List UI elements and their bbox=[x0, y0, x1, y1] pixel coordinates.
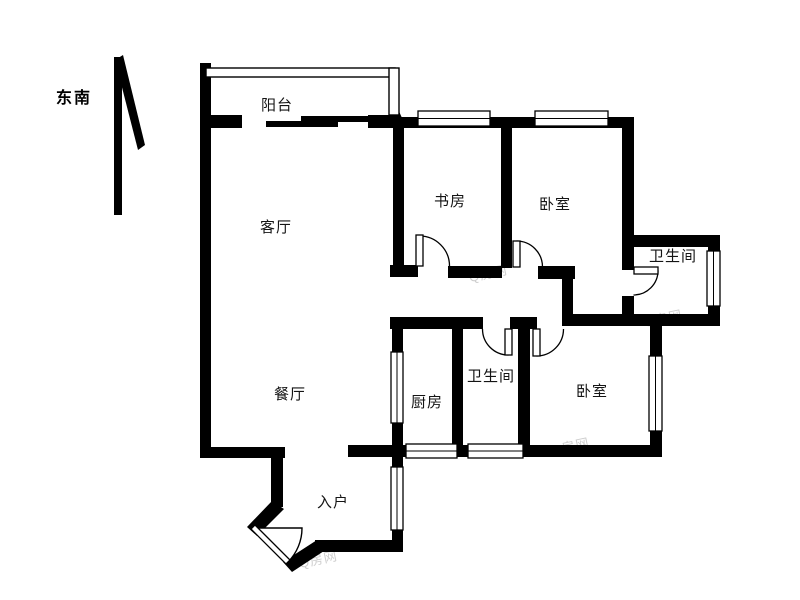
wall-entry-right-stub-top bbox=[392, 457, 403, 467]
balcony-railing-top bbox=[206, 68, 395, 77]
wall-bathroom2-right bbox=[518, 326, 530, 447]
window-kitchen bbox=[391, 352, 403, 423]
wall-bedroom2-top bbox=[562, 314, 720, 326]
wall-corridor-north-a bbox=[390, 265, 418, 277]
wall-right-upper bbox=[622, 117, 634, 270]
room-label-balcony: 阳台 bbox=[261, 97, 293, 114]
wall-kitchen-left-top bbox=[392, 317, 403, 352]
room-label-dining: 餐厅 bbox=[274, 386, 306, 403]
wall-corridor-north-b bbox=[448, 266, 502, 278]
floor-plan: Q房网 Q房网 Q房网 Q房网 东南 bbox=[0, 0, 800, 600]
wall-bathroom1-right-cap-top bbox=[708, 235, 720, 251]
door-bathroom2 bbox=[483, 329, 513, 355]
room-label-kitchen: 厨房 bbox=[411, 394, 443, 411]
compass-label: 东南 bbox=[56, 88, 92, 107]
balcony-railing-right bbox=[389, 68, 399, 115]
window-bathroom1 bbox=[707, 251, 720, 306]
door-study bbox=[416, 235, 450, 266]
compass: 东南 bbox=[56, 55, 145, 215]
window-bottom-bathroom2 bbox=[468, 444, 523, 458]
floor-plan-drawing: Q房网 Q房网 Q房网 Q房网 东南 bbox=[0, 0, 800, 600]
wall-corridor-east bbox=[562, 266, 573, 318]
door-bedroom2 bbox=[533, 329, 564, 356]
wall-entry-right-stub-bottom bbox=[392, 530, 403, 552]
window-bedroom2 bbox=[649, 356, 662, 431]
window-bedroom1 bbox=[535, 111, 608, 126]
window-study bbox=[418, 111, 490, 126]
wall-kitchen-right bbox=[452, 323, 463, 449]
room-label-bathroom1: 卫生间 bbox=[649, 248, 697, 265]
wall-entry-left bbox=[271, 447, 283, 507]
door-bedroom1 bbox=[513, 241, 543, 267]
wall-bathroom1-door-stub bbox=[622, 296, 634, 314]
wall-living-study bbox=[393, 128, 404, 268]
window-bottom-kitchen bbox=[406, 444, 457, 458]
wall-balcony-left-stub bbox=[208, 115, 242, 128]
balcony-sliding-door bbox=[266, 116, 377, 127]
wall-bathroom1-top bbox=[622, 235, 720, 247]
wall-entry-bottom bbox=[315, 540, 403, 552]
room-label-living: 客厅 bbox=[260, 219, 292, 236]
wall-corridor-south-a bbox=[390, 317, 483, 329]
room-label-study: 书房 bbox=[434, 193, 466, 210]
window-entry bbox=[391, 467, 403, 530]
room-label-entry: 入户 bbox=[317, 494, 349, 511]
sliding-door-panel bbox=[301, 116, 377, 122]
wall-bedroom2-right-top bbox=[650, 326, 662, 356]
door-bathroom1 bbox=[634, 267, 659, 295]
room-label-bedroom2: 卧室 bbox=[576, 383, 608, 400]
walls bbox=[200, 63, 720, 572]
room-label-bathroom2: 卫生间 bbox=[467, 368, 515, 385]
balcony-railing bbox=[206, 68, 399, 115]
room-label-bedroom1: 卧室 bbox=[539, 196, 571, 213]
wall-study-bedroom1 bbox=[501, 128, 512, 268]
